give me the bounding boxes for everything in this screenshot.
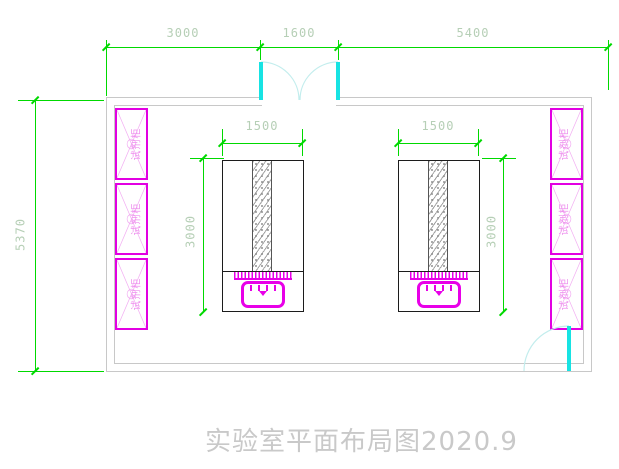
- left-dim-ext-bottom: [18, 371, 104, 372]
- double-door-leaf-left: [259, 62, 263, 100]
- bench-left-depth-dim-line: [203, 158, 204, 312]
- dim-label-bench-right-width: 1500: [408, 120, 468, 133]
- top-dim-ext-door-left: [260, 40, 261, 60]
- cabinet-column-right: 试剂柜 试剂柜 试剂柜: [550, 108, 583, 330]
- reagent-cabinet: 试剂柜: [115, 183, 148, 255]
- cad-floorplan-canvas: 3000 1600 5400 5370 试剂柜 试剂柜 试剂柜 试剂柜: [0, 0, 619, 469]
- reagent-cabinet: 试剂柜: [550, 108, 583, 180]
- sink-basin-icon: [241, 281, 285, 308]
- cabinet-label: 试剂柜: [127, 128, 142, 161]
- reagent-cabinet: 试剂柜: [115, 258, 148, 330]
- cabinet-label: 试剂柜: [556, 203, 571, 236]
- cabinet-label: 试剂柜: [127, 278, 142, 311]
- cabinet-label: 试剂柜: [556, 278, 571, 311]
- lab-bench-right: [398, 160, 480, 312]
- left-dim-ext-top: [18, 100, 104, 101]
- dim-label-3000: 3000: [153, 27, 213, 40]
- bench-right-width-dim-line: [398, 143, 478, 144]
- sink-grill-icon: [410, 272, 468, 280]
- single-door-leaf: [567, 326, 571, 371]
- double-door-leaf-right: [336, 62, 340, 100]
- cabinet-column-left: 试剂柜 试剂柜 试剂柜: [115, 108, 148, 330]
- door-opening-gap: [262, 95, 336, 107]
- dim-label-1600: 1600: [269, 27, 329, 40]
- bench-center-strip: [428, 161, 448, 271]
- dim-label-5400: 5400: [443, 27, 503, 40]
- left-dim-line: [35, 100, 36, 371]
- reagent-cabinet: 试剂柜: [550, 183, 583, 255]
- bench-right-depth-dim-line: [503, 158, 504, 312]
- dim-ext: [190, 158, 224, 159]
- sink-grill-icon: [234, 272, 292, 280]
- sink-drain-icon: [435, 291, 443, 296]
- cabinet-label: 试剂柜: [127, 203, 142, 236]
- reagent-cabinet: 试剂柜: [115, 108, 148, 180]
- sink-symbol: [233, 272, 293, 308]
- dim-label-bench-left-width: 1500: [232, 120, 292, 133]
- dim-label-bench-left-depth: 3000: [185, 210, 198, 254]
- drawing-title: 实验室平面布局图2020.9: [205, 421, 495, 458]
- dim-label-5370: 5370: [15, 213, 28, 257]
- sink-basin-icon: [417, 281, 461, 308]
- top-dim-line: [106, 47, 608, 48]
- cabinet-label: 试剂柜: [556, 128, 571, 161]
- dim-ext: [482, 158, 516, 159]
- bench-center-strip: [252, 161, 272, 271]
- bench-left-width-dim-line: [222, 143, 302, 144]
- sink-symbol: [409, 272, 469, 308]
- dim-label-bench-right-depth: 3000: [486, 210, 499, 254]
- top-dim-ext-door-right: [338, 40, 339, 60]
- sink-drain-icon: [259, 291, 267, 296]
- reagent-cabinet: 试剂柜: [550, 258, 583, 330]
- lab-bench-left: [222, 160, 304, 312]
